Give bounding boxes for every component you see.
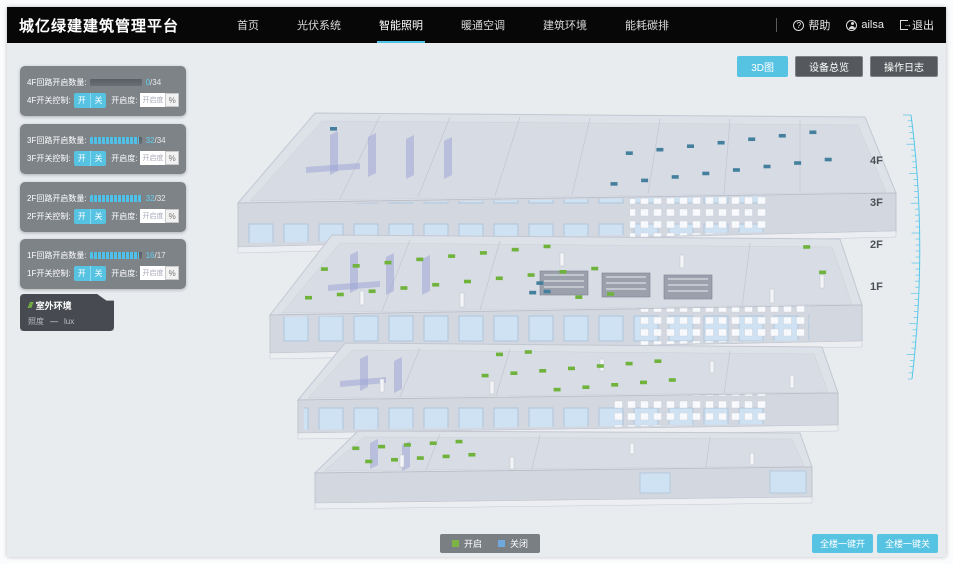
all-on-button[interactable]: 全楼一键开 bbox=[812, 534, 873, 553]
dim-unit-button[interactable]: % bbox=[165, 151, 179, 165]
floor-label-1f[interactable]: 1F bbox=[870, 281, 894, 323]
floor-4f-slab bbox=[238, 113, 896, 253]
operation-log-button[interactable]: 操作日志 bbox=[870, 56, 938, 77]
building-3d-model[interactable] bbox=[210, 75, 910, 545]
illuminance-label: 照度 bbox=[28, 316, 44, 327]
env-slashes-icon: /// bbox=[28, 301, 32, 310]
floor-label-4f[interactable]: 4F bbox=[870, 155, 894, 197]
logout-button[interactable]: 退出 bbox=[900, 17, 934, 33]
switch-buttons: 开关 bbox=[74, 209, 107, 224]
floor-panel-1f: 1F回路开启数量: 16/17 1F开关控制: 开关 开启度: % bbox=[20, 239, 186, 289]
circuit-count-label: 2F回路开启数量: bbox=[27, 193, 87, 204]
illuminance-value: — bbox=[50, 317, 58, 326]
help-icon: ? bbox=[793, 20, 804, 31]
nav-item-home[interactable]: 首页 bbox=[235, 7, 261, 43]
circuit-count-label: 4F回路开启数量: bbox=[27, 77, 87, 88]
circuit-count-label: 3F回路开启数量: bbox=[27, 135, 87, 146]
dim-unit-button[interactable]: % bbox=[165, 209, 179, 223]
user-name: ailsa bbox=[861, 19, 884, 31]
floor-panel-3f: 3F回路开启数量: 32/34 3F开关控制: 开关 开启度: % bbox=[20, 124, 186, 174]
view-3d-button[interactable]: 3D图 bbox=[737, 56, 788, 77]
dim-input[interactable] bbox=[140, 266, 165, 280]
floor-1f-slab bbox=[315, 431, 812, 509]
switch-control-label: 1F开关控制: bbox=[27, 268, 71, 279]
floor-2f-slab bbox=[298, 343, 838, 439]
switch-buttons: 开关 bbox=[74, 151, 107, 166]
switch-control-label: 3F开关控制: bbox=[27, 153, 71, 164]
switch-control-label: 4F开关控制: bbox=[27, 95, 71, 106]
circuit-progress-bar bbox=[90, 79, 142, 86]
floor-labels: 4F 3F 2F 1F bbox=[870, 155, 894, 323]
circuit-count-value: 32/34 bbox=[146, 136, 166, 145]
logout-icon bbox=[900, 20, 908, 30]
switch-off-button[interactable]: 关 bbox=[90, 266, 106, 281]
circuit-count-value: 32/32 bbox=[146, 194, 166, 203]
dim-unit-button[interactable]: % bbox=[165, 266, 179, 280]
floor-zoom-ruler bbox=[895, 107, 940, 387]
nav-item-pv-system[interactable]: 光伏系统 bbox=[295, 7, 343, 43]
circuit-progress-bar bbox=[90, 137, 142, 144]
switch-buttons: 开关 bbox=[74, 93, 107, 108]
legend-off-label: 关闭 bbox=[510, 537, 528, 550]
switch-on-button[interactable]: 开 bbox=[74, 209, 90, 224]
all-off-button[interactable]: 全楼一键关 bbox=[877, 534, 938, 553]
view-buttons: 3D图 设备总览 操作日志 bbox=[737, 56, 938, 77]
dim-input[interactable] bbox=[140, 93, 165, 107]
circuit-count-value: 0/34 bbox=[146, 78, 162, 87]
switch-buttons: 开关 bbox=[74, 266, 107, 281]
nav-item-smart-lighting[interactable]: 智能照明 bbox=[377, 7, 425, 43]
switch-on-button[interactable]: 开 bbox=[74, 266, 90, 281]
legend-on-label: 开启 bbox=[464, 537, 482, 550]
circuit-count-label: 1F回路开启数量: bbox=[27, 250, 87, 261]
outdoor-env-panel: ///室外环境 照度 — lux bbox=[20, 294, 114, 331]
floor-panel-2f: 2F回路开启数量: 32/32 2F开关控制: 开关 开启度: % bbox=[20, 182, 186, 232]
header: 城亿绿建建筑管理平台 首页 光伏系统 智能照明 暖通空调 建筑环境 能耗碳排 ?… bbox=[7, 7, 946, 43]
switch-control-label: 2F开关控制: bbox=[27, 211, 71, 222]
header-divider bbox=[776, 18, 777, 32]
floor-panel-4f: 4F回路开启数量: 0/34 4F开关控制: 开关 开启度: % bbox=[20, 66, 186, 116]
legend-on-swatch bbox=[452, 540, 459, 547]
floor-label-3f[interactable]: 3F bbox=[870, 197, 894, 239]
user-icon bbox=[846, 20, 857, 31]
switch-off-button[interactable]: 关 bbox=[90, 209, 106, 224]
nav-item-energy-carbon[interactable]: 能耗碳排 bbox=[623, 7, 671, 43]
floor-label-2f[interactable]: 2F bbox=[870, 239, 894, 281]
switch-on-button[interactable]: 开 bbox=[74, 93, 90, 108]
device-overview-button[interactable]: 设备总览 bbox=[795, 56, 863, 77]
header-right: ?帮助 ailsa 退出 bbox=[776, 17, 934, 33]
floor-3f-slab bbox=[270, 235, 862, 359]
dim-label: 开启度: bbox=[111, 268, 137, 279]
dim-label: 开启度: bbox=[111, 153, 137, 164]
user-menu[interactable]: ailsa bbox=[846, 19, 884, 31]
help-button[interactable]: ?帮助 bbox=[793, 17, 830, 33]
circuit-progress-bar bbox=[90, 195, 142, 202]
nav-item-building-env[interactable]: 建筑环境 bbox=[541, 7, 589, 43]
switch-on-button[interactable]: 开 bbox=[74, 151, 90, 166]
circuit-count-value: 16/17 bbox=[146, 251, 166, 260]
dim-unit-button[interactable]: % bbox=[165, 93, 179, 107]
dim-input[interactable] bbox=[140, 209, 165, 223]
main-nav: 首页 光伏系统 智能照明 暖通空调 建筑环境 能耗碳排 bbox=[235, 7, 671, 43]
nav-item-hvac[interactable]: 暖通空调 bbox=[459, 7, 507, 43]
light-status-legend: 开启 关闭 bbox=[440, 534, 540, 553]
dim-input[interactable] bbox=[140, 151, 165, 165]
page-title: 城亿绿建建筑管理平台 bbox=[19, 15, 179, 36]
app-window: 城亿绿建建筑管理平台 首页 光伏系统 智能照明 暖通空调 建筑环境 能耗碳排 ?… bbox=[7, 7, 946, 557]
switch-off-button[interactable]: 关 bbox=[90, 151, 106, 166]
circuit-progress-bar bbox=[90, 252, 142, 259]
dim-label: 开启度: bbox=[111, 95, 137, 106]
legend-off-swatch bbox=[498, 540, 505, 547]
dim-label: 开启度: bbox=[111, 211, 137, 222]
illuminance-unit: lux bbox=[64, 317, 74, 326]
env-panel-title: 室外环境 bbox=[36, 299, 72, 312]
switch-off-button[interactable]: 关 bbox=[90, 93, 106, 108]
bulk-control-buttons: 全楼一键开 全楼一键关 bbox=[812, 534, 938, 553]
